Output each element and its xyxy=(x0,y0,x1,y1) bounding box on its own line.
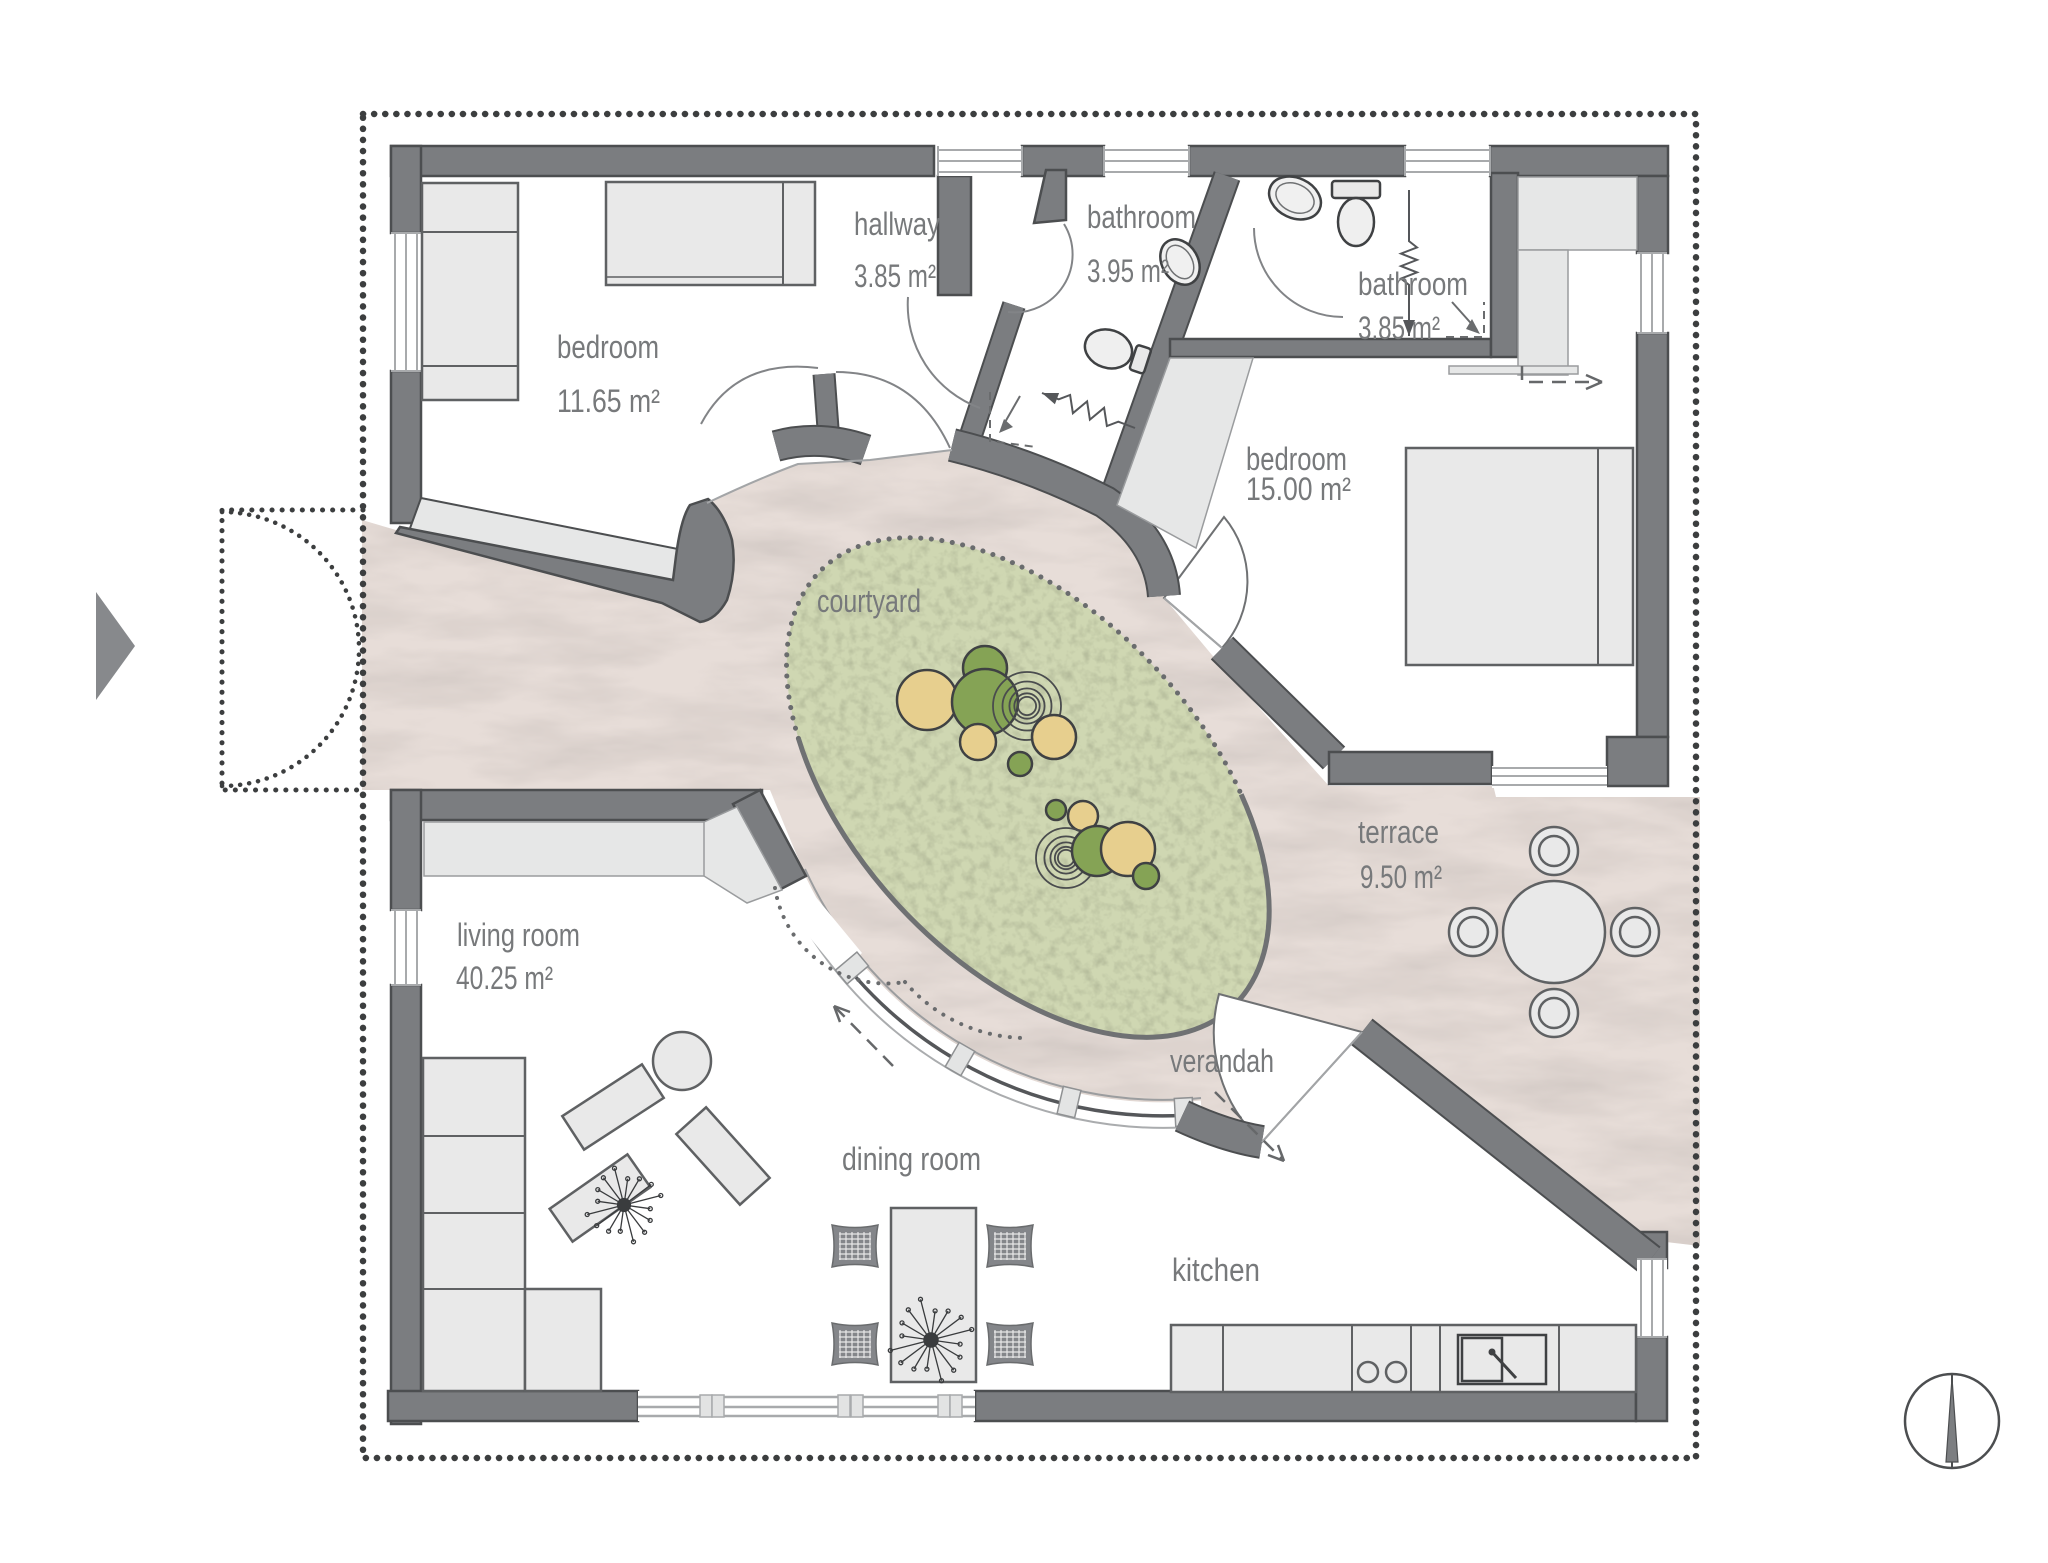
svg-text:living room: living room xyxy=(457,917,580,953)
svg-text:3.85 m²: 3.85 m² xyxy=(854,258,936,294)
svg-text:verandah: verandah xyxy=(1170,1043,1274,1079)
svg-text:courtyard: courtyard xyxy=(817,583,921,619)
svg-text:3.95 m²: 3.95 m² xyxy=(1087,253,1169,289)
svg-text:bathroom: bathroom xyxy=(1358,266,1468,302)
svg-text:kitchen: kitchen xyxy=(1172,1252,1260,1288)
svg-text:hallway: hallway xyxy=(854,206,940,242)
svg-text:15.00 m²: 15.00 m² xyxy=(1246,471,1351,507)
svg-text:dining room: dining room xyxy=(842,1141,981,1177)
svg-text:40.25 m²: 40.25 m² xyxy=(456,960,553,996)
svg-text:3.85 m²: 3.85 m² xyxy=(1358,310,1440,346)
svg-text:bedroom: bedroom xyxy=(557,329,659,365)
svg-text:11.65 m²: 11.65 m² xyxy=(557,383,660,419)
svg-text:9.50 m²: 9.50 m² xyxy=(1360,859,1442,895)
svg-text:terrace: terrace xyxy=(1358,814,1439,850)
svg-text:bathroom: bathroom xyxy=(1087,199,1196,235)
